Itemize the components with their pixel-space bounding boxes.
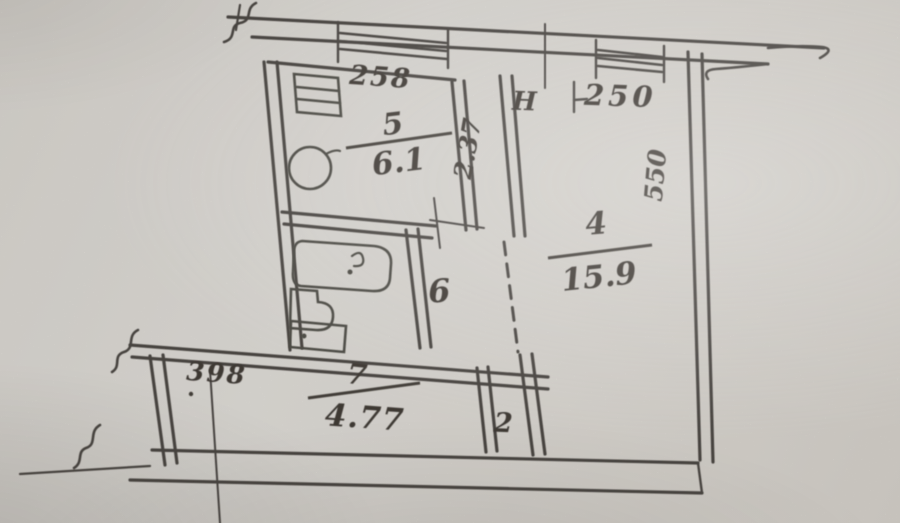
paper-grain-texture <box>0 0 900 523</box>
floor-plan-photo: 258 5 6.1 2.37 H 250 550 4 15.9 6 398 7 … <box>0 0 900 523</box>
floor-plan-svg: 258 5 6.1 2.37 H 250 550 4 15.9 6 398 7 … <box>0 0 900 523</box>
